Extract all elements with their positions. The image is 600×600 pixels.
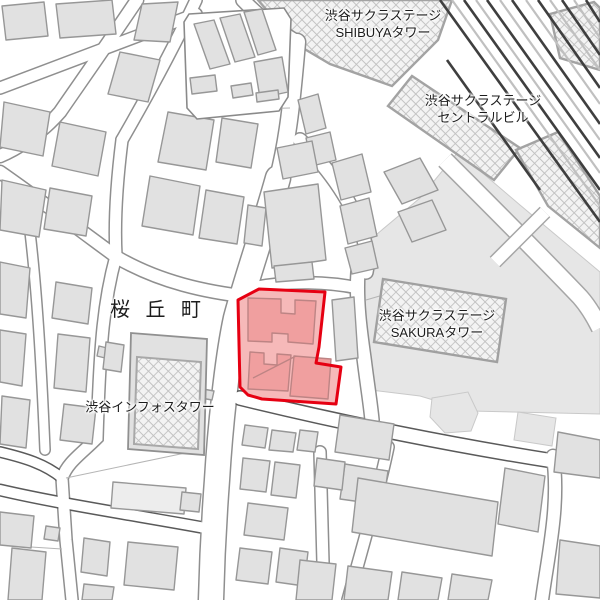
- map-graphics: [0, 0, 600, 600]
- label-line: SHIBUYAタワー: [325, 25, 441, 42]
- label-line: セントラルビル: [425, 110, 541, 127]
- label-line: 渋谷サクラステージ: [425, 93, 541, 110]
- map-canvas[interactable]: 渋谷サクラステージ SHIBUYAタワー 渋谷サクラステージ セントラルビル 渋…: [0, 0, 600, 600]
- label-central-building: 渋谷サクラステージ セントラルビル: [425, 93, 541, 127]
- label-line: 渋谷サクラステージ: [379, 308, 495, 325]
- label-sakura-tower: 渋谷サクラステージ SAKURAタワー: [379, 308, 495, 342]
- label-infos-tower: 渋谷インフォスタワー: [85, 400, 215, 417]
- highlighted-parcel[interactable]: [238, 289, 341, 404]
- label-shibuya-tower: 渋谷サクラステージ SHIBUYAタワー: [325, 8, 441, 42]
- label-line: 渋谷サクラステージ: [325, 8, 441, 25]
- label-district-sakuragaoka: 桜 丘 町: [110, 297, 206, 323]
- infos-tower-building: [128, 333, 207, 455]
- label-line: SAKURAタワー: [379, 325, 495, 342]
